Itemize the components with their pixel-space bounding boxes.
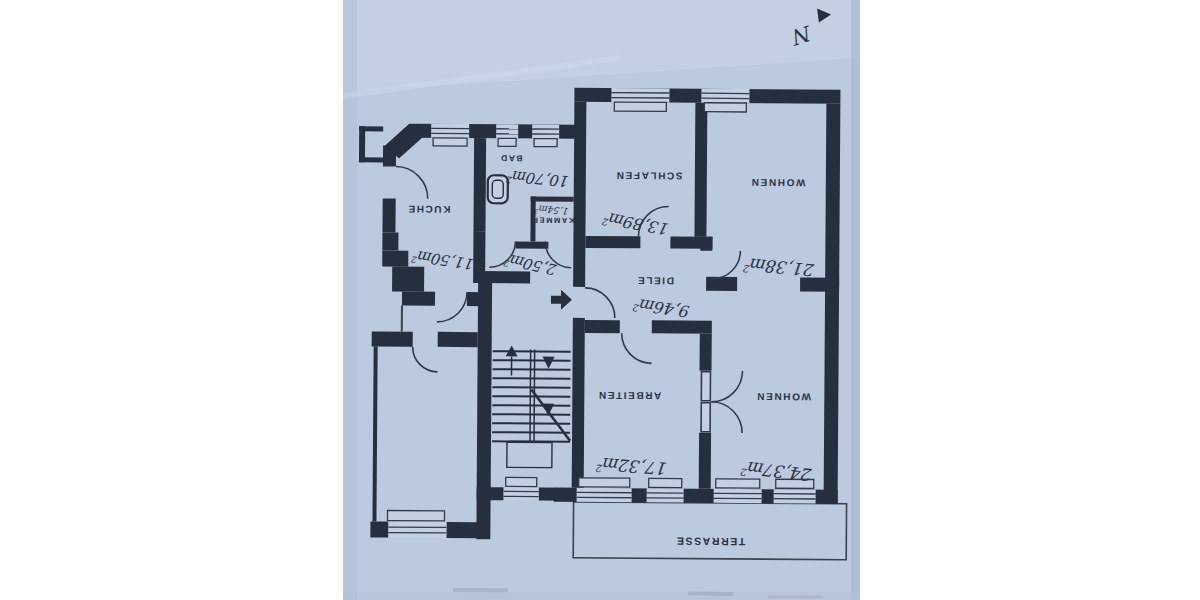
window-top-wohnen [701, 89, 749, 112]
label-terrasse: TERRASSE [675, 536, 745, 548]
label-wohnen-nord: WOHNEN [750, 177, 805, 188]
window-bottom-3 [714, 479, 762, 503]
label-diele: DIELE [636, 275, 674, 286]
window-stairwell [504, 477, 539, 500]
label-kueche: KUCHE [407, 204, 451, 215]
photo-stage: KUCHE BAD KAMMER SCHLAFEN WOHNEN DIELE A… [0, 0, 1200, 600]
label-schlafen: SCHLAFEN [615, 170, 682, 181]
floor-plan-photo: KUCHE BAD KAMMER SCHLAFEN WOHNEN DIELE A… [0, 0, 1200, 600]
label-arbeiten: ARBEITEN [597, 390, 661, 401]
window-top-kueche [431, 124, 469, 146]
double-door-leaf-top [701, 372, 710, 401]
label-bad: BAD [499, 153, 522, 163]
window-room-southwest [387, 511, 446, 538]
window-bottom-2 [647, 478, 684, 502]
window-bottom-1 [577, 478, 632, 502]
toilet-icon [488, 175, 508, 203]
window-top-bad-1 [496, 124, 518, 146]
stair-divider [530, 350, 531, 443]
double-door-leaf-bottom [701, 403, 710, 432]
window-top-schlafen [611, 88, 669, 111]
label-wohnen-sued: WOHNEN [756, 391, 811, 402]
window-top-bad-2 [532, 125, 559, 147]
